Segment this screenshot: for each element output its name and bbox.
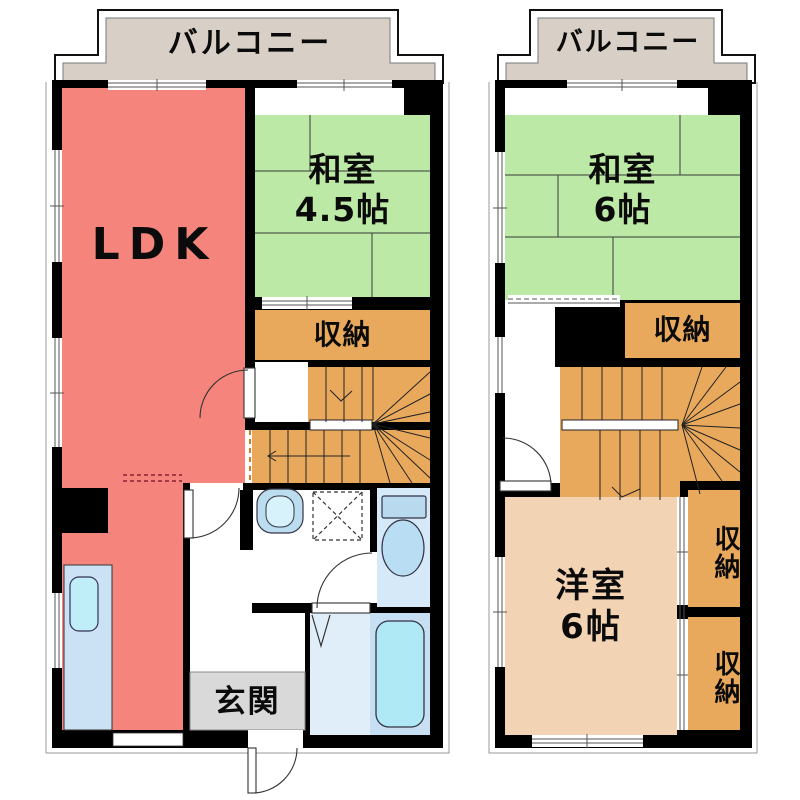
- washbasin: [257, 489, 303, 533]
- bathtub: [376, 621, 424, 727]
- washitsu-6-name: 和室: [505, 150, 740, 190]
- western-room-size: 6帖: [505, 607, 677, 648]
- entrance-label: 玄関: [190, 684, 305, 722]
- kitchen-sink: [70, 577, 98, 631]
- balcony-right-label: バルコニー: [498, 27, 758, 60]
- balcony-left-label: バルコニー: [90, 26, 410, 63]
- ldk-room: [62, 88, 245, 483]
- storage-2f-upper-label: 収納: [688, 505, 740, 601]
- washitsu-45-label: 和室 4.5帖: [255, 150, 430, 231]
- ldk-label: LDK: [62, 218, 247, 272]
- floor-plan-drawing: [0, 0, 800, 800]
- western-room-label: 洋室 6帖: [505, 566, 677, 649]
- washitsu-6-size: 6帖: [505, 190, 740, 230]
- storage-2f-lower-label: 収納: [688, 630, 740, 726]
- washitsu-45-size: 4.5帖: [255, 190, 430, 230]
- western-room-name: 洋室: [505, 566, 677, 607]
- toilet: [382, 496, 426, 576]
- storage-1f-label: 収納: [255, 318, 430, 352]
- floor-plan-image: バルコニー バルコニー LDK 和室 4.5帖 収納 玄関 和室 6帖 収納 洋…: [0, 0, 800, 800]
- storage-2f-label: 収納: [625, 313, 740, 347]
- hall-2f: [505, 300, 560, 483]
- washitsu-6-label: 和室 6帖: [505, 150, 740, 231]
- washitsu-45-name: 和室: [255, 150, 430, 190]
